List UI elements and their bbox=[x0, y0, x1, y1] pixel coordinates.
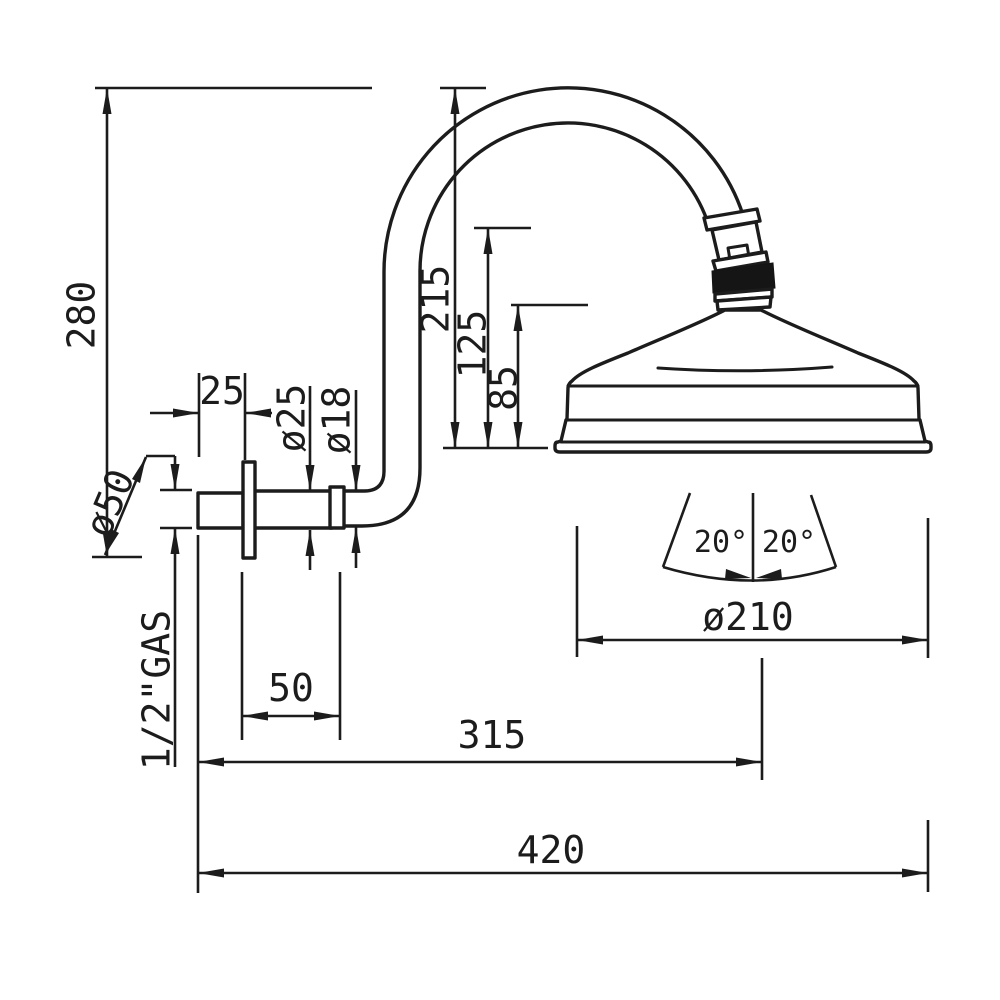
pipe-collar bbox=[330, 487, 344, 528]
dim-thread-label: 1/2"GAS bbox=[135, 610, 179, 770]
dim-flange-diameter: ø50 bbox=[76, 456, 175, 555]
head-ring-lower bbox=[717, 297, 771, 310]
dim-angle-left-label: 20° bbox=[694, 525, 748, 560]
fixture bbox=[198, 88, 931, 558]
technical-drawing-page: 280 ø50 1/2"GAS 25 ø25 bbox=[0, 0, 1000, 1000]
dim-arm-id: ø18 bbox=[315, 386, 361, 568]
dim-50: 50 bbox=[242, 572, 340, 740]
dim-angle-right-label: 20° bbox=[762, 525, 816, 560]
dim-arm-od-label: ø25 bbox=[270, 384, 314, 453]
wall-nipple bbox=[198, 493, 243, 528]
dim-420: 420 bbox=[198, 820, 928, 892]
dim-25-label: 25 bbox=[199, 369, 245, 413]
dim-315-label: 315 bbox=[458, 713, 527, 757]
dim-420-label: 420 bbox=[517, 828, 586, 872]
dim-50-label: 50 bbox=[268, 666, 314, 710]
dim-arm-id-label: ø18 bbox=[315, 386, 359, 455]
head-bell bbox=[555, 310, 931, 452]
wall-flange bbox=[243, 462, 255, 558]
dim-arm-od: ø25 bbox=[270, 384, 315, 570]
dim-head-diameter-label: ø210 bbox=[702, 595, 794, 639]
dim-thread: 1/2"GAS bbox=[135, 456, 193, 770]
dim-spray-angle: 20° 20° bbox=[663, 493, 836, 582]
dim-280-label: 280 bbox=[60, 281, 104, 350]
dim-85-label: 85 bbox=[482, 365, 526, 411]
supply-pipe bbox=[254, 491, 332, 528]
shower-arm bbox=[342, 88, 743, 526]
shower-head-drawing: 280 ø50 1/2"GAS 25 ø25 bbox=[0, 0, 1000, 1000]
dim-flange-label: ø50 bbox=[76, 463, 143, 543]
dim-25: 25 bbox=[150, 369, 272, 460]
